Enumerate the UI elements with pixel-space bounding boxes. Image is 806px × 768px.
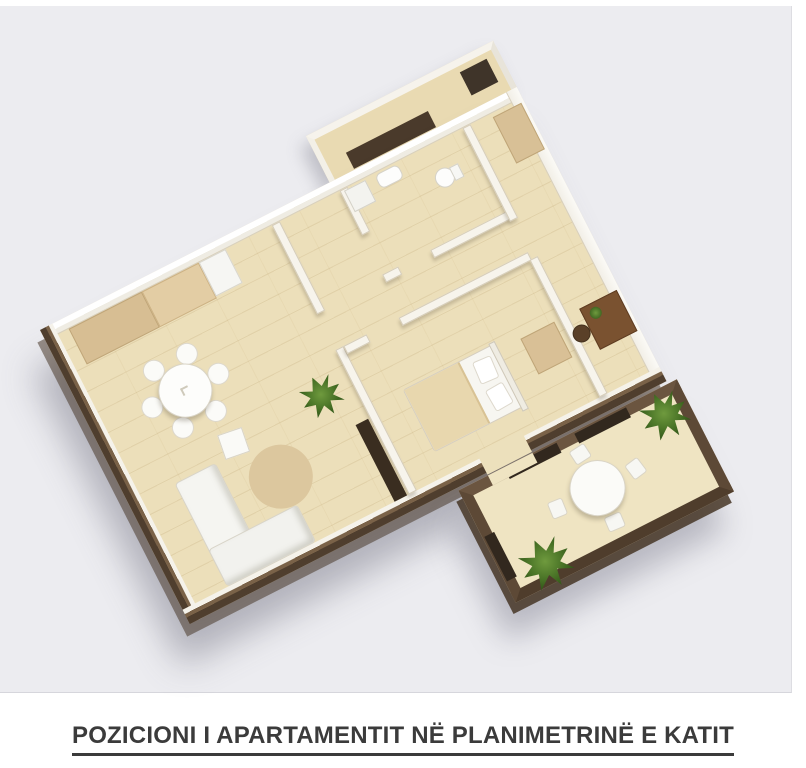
stair-door — [460, 59, 499, 96]
side-table — [217, 427, 250, 460]
balcony-chair — [547, 497, 569, 520]
balcony-table — [560, 450, 635, 525]
interior-wall — [343, 334, 370, 354]
desk — [579, 290, 637, 350]
interior-wall — [382, 266, 402, 282]
interior-wall — [430, 211, 511, 258]
floorplan-render-area — [0, 6, 792, 693]
parapet-panel — [484, 532, 517, 582]
caption-bar: POZICIONI I APARTAMENTIT NË PLANIMETRINË… — [0, 722, 806, 756]
double-bed — [403, 344, 524, 452]
exterior-wall-north — [40, 87, 522, 341]
balcony-plant — [511, 529, 581, 599]
dining-table-set — [132, 337, 240, 445]
indoor-plant — [294, 368, 350, 424]
interior-wall — [399, 252, 532, 326]
caption-title: POZICIONI I APARTAMENTIT NË PLANIMETRINË… — [72, 722, 734, 756]
interior-wall — [335, 346, 417, 494]
area-rug — [238, 434, 324, 520]
page: POZICIONI I APARTAMENTIT NË PLANIMETRINË… — [0, 0, 806, 768]
interior-wall — [272, 221, 325, 314]
balcony-chair — [624, 457, 648, 481]
